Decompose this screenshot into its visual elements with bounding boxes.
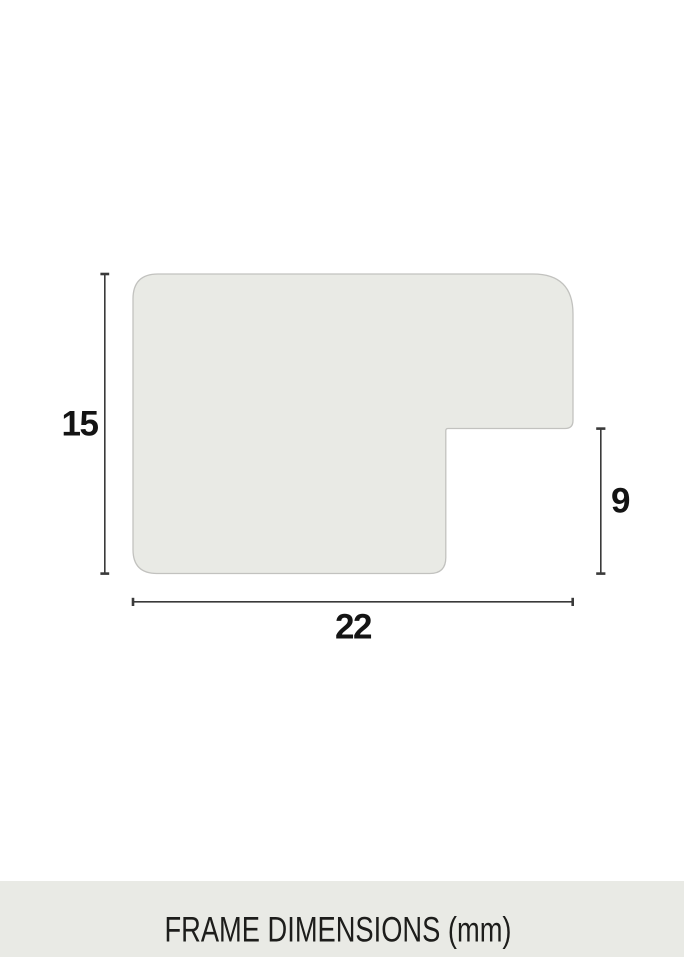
svg-text:15: 15: [62, 405, 99, 444]
svg-text:22: 22: [335, 608, 372, 647]
svg-text:9: 9: [611, 482, 630, 521]
svg-text:FRAME DIMENSIONS (mm): FRAME DIMENSIONS (mm): [165, 911, 512, 950]
